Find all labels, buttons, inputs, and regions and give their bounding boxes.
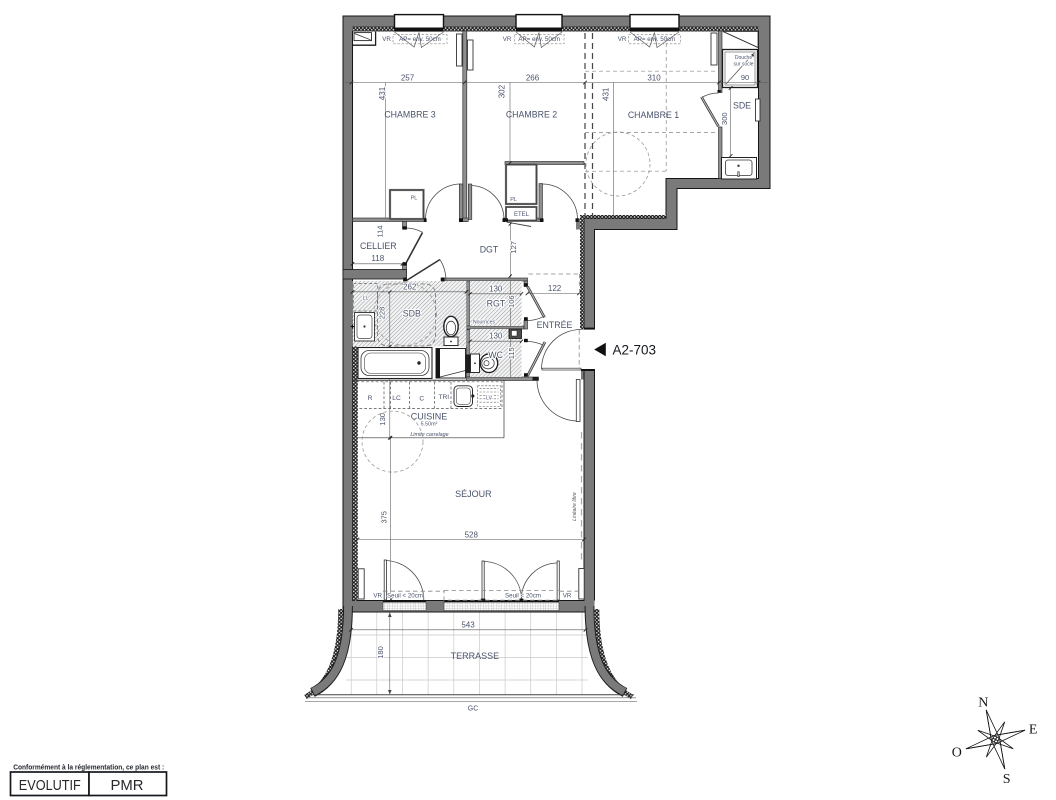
- svg-text:SÉJOUR: SÉJOUR: [455, 489, 492, 499]
- svg-text:LL: LL: [363, 295, 369, 301]
- svg-text:375: 375: [379, 511, 388, 524]
- svg-text:122: 122: [548, 284, 562, 293]
- svg-text:EVOLUTIF: EVOLUTIF: [19, 777, 81, 794]
- svg-text:Nourrices: Nourrices: [473, 319, 496, 325]
- svg-text:114: 114: [375, 226, 384, 238]
- svg-text:CELLIER: CELLIER: [360, 241, 397, 251]
- svg-text:CHAMBRE 2: CHAMBRE 2: [506, 109, 557, 119]
- svg-text:Linéaire libre: Linéaire libre: [572, 492, 578, 521]
- svg-text:VR: VR: [373, 593, 382, 600]
- svg-text:528: 528: [465, 531, 479, 540]
- svg-text:RGT: RGT: [487, 299, 506, 309]
- svg-text:Conformément à la réglementati: Conformément à la réglementation, ce pla…: [13, 762, 164, 771]
- svg-text:Seuil < 20cm: Seuil < 20cm: [505, 593, 541, 600]
- svg-text:262: 262: [403, 282, 417, 291]
- svg-text:DGT: DGT: [480, 245, 499, 255]
- svg-text:90: 90: [741, 73, 749, 82]
- svg-text:431: 431: [378, 86, 387, 100]
- svg-text:VR: VR: [563, 593, 572, 600]
- svg-text:WC: WC: [488, 350, 503, 360]
- svg-text:130: 130: [489, 332, 503, 341]
- svg-text:CHAMBRE 3: CHAMBRE 3: [384, 109, 435, 119]
- svg-text:VR: VR: [618, 36, 627, 43]
- svg-text:S: S: [1003, 772, 1011, 787]
- svg-text:TERRASSE: TERRASSE: [451, 651, 500, 661]
- svg-text:LV: LV: [486, 396, 492, 402]
- svg-text:GC: GC: [468, 706, 479, 713]
- svg-text:AP= env. 50cm: AP= env. 50cm: [634, 36, 676, 43]
- svg-text:R: R: [368, 395, 373, 402]
- svg-text:A2-703: A2-703: [613, 342, 657, 358]
- svg-text:TRI: TRI: [438, 394, 449, 401]
- svg-text:5.50m²: 5.50m²: [421, 422, 438, 428]
- svg-text:Douche: Douche: [735, 55, 752, 61]
- svg-text:302: 302: [498, 84, 507, 98]
- svg-text:300: 300: [720, 112, 729, 125]
- svg-text:PL: PL: [411, 195, 418, 201]
- svg-text:AP= env. 50cm: AP= env. 50cm: [518, 36, 560, 43]
- svg-text:310: 310: [647, 73, 661, 82]
- svg-text:sur socle: sur socle: [733, 62, 753, 68]
- svg-text:PMR: PMR: [111, 777, 144, 794]
- svg-text:127: 127: [509, 241, 518, 254]
- svg-text:N: N: [978, 696, 988, 711]
- svg-text:130: 130: [489, 284, 503, 293]
- svg-text:Limite carrelage: Limite carrelage: [410, 432, 448, 438]
- svg-text:LC: LC: [392, 395, 401, 402]
- svg-text:257: 257: [401, 73, 415, 82]
- svg-text:SDE: SDE: [733, 101, 751, 111]
- svg-text:115: 115: [507, 347, 516, 359]
- svg-text:ENTRÉE: ENTRÉE: [537, 320, 573, 330]
- svg-text:Seuil < 20cm: Seuil < 20cm: [387, 593, 423, 600]
- svg-text:130: 130: [378, 413, 387, 426]
- svg-text:AP= env. 50cm: AP= env. 50cm: [399, 36, 441, 43]
- svg-text:431: 431: [601, 87, 610, 101]
- svg-text:ETEL: ETEL: [514, 212, 530, 218]
- svg-text:SDB: SDB: [403, 309, 421, 319]
- svg-text:E: E: [1029, 722, 1038, 737]
- svg-text:C: C: [419, 396, 424, 403]
- svg-text:106: 106: [507, 295, 516, 308]
- svg-text:180: 180: [376, 646, 385, 659]
- svg-text:228: 228: [377, 307, 386, 320]
- svg-text:CUISINE: CUISINE: [411, 411, 448, 421]
- svg-text:543: 543: [461, 620, 475, 629]
- svg-text:CHAMBRE 1: CHAMBRE 1: [628, 110, 679, 120]
- svg-text:118: 118: [371, 254, 384, 263]
- svg-text:266: 266: [526, 73, 540, 82]
- svg-text:O: O: [952, 746, 962, 761]
- svg-text:VR: VR: [382, 36, 391, 43]
- svg-text:PL: PL: [510, 197, 517, 203]
- svg-text:VR: VR: [503, 36, 512, 43]
